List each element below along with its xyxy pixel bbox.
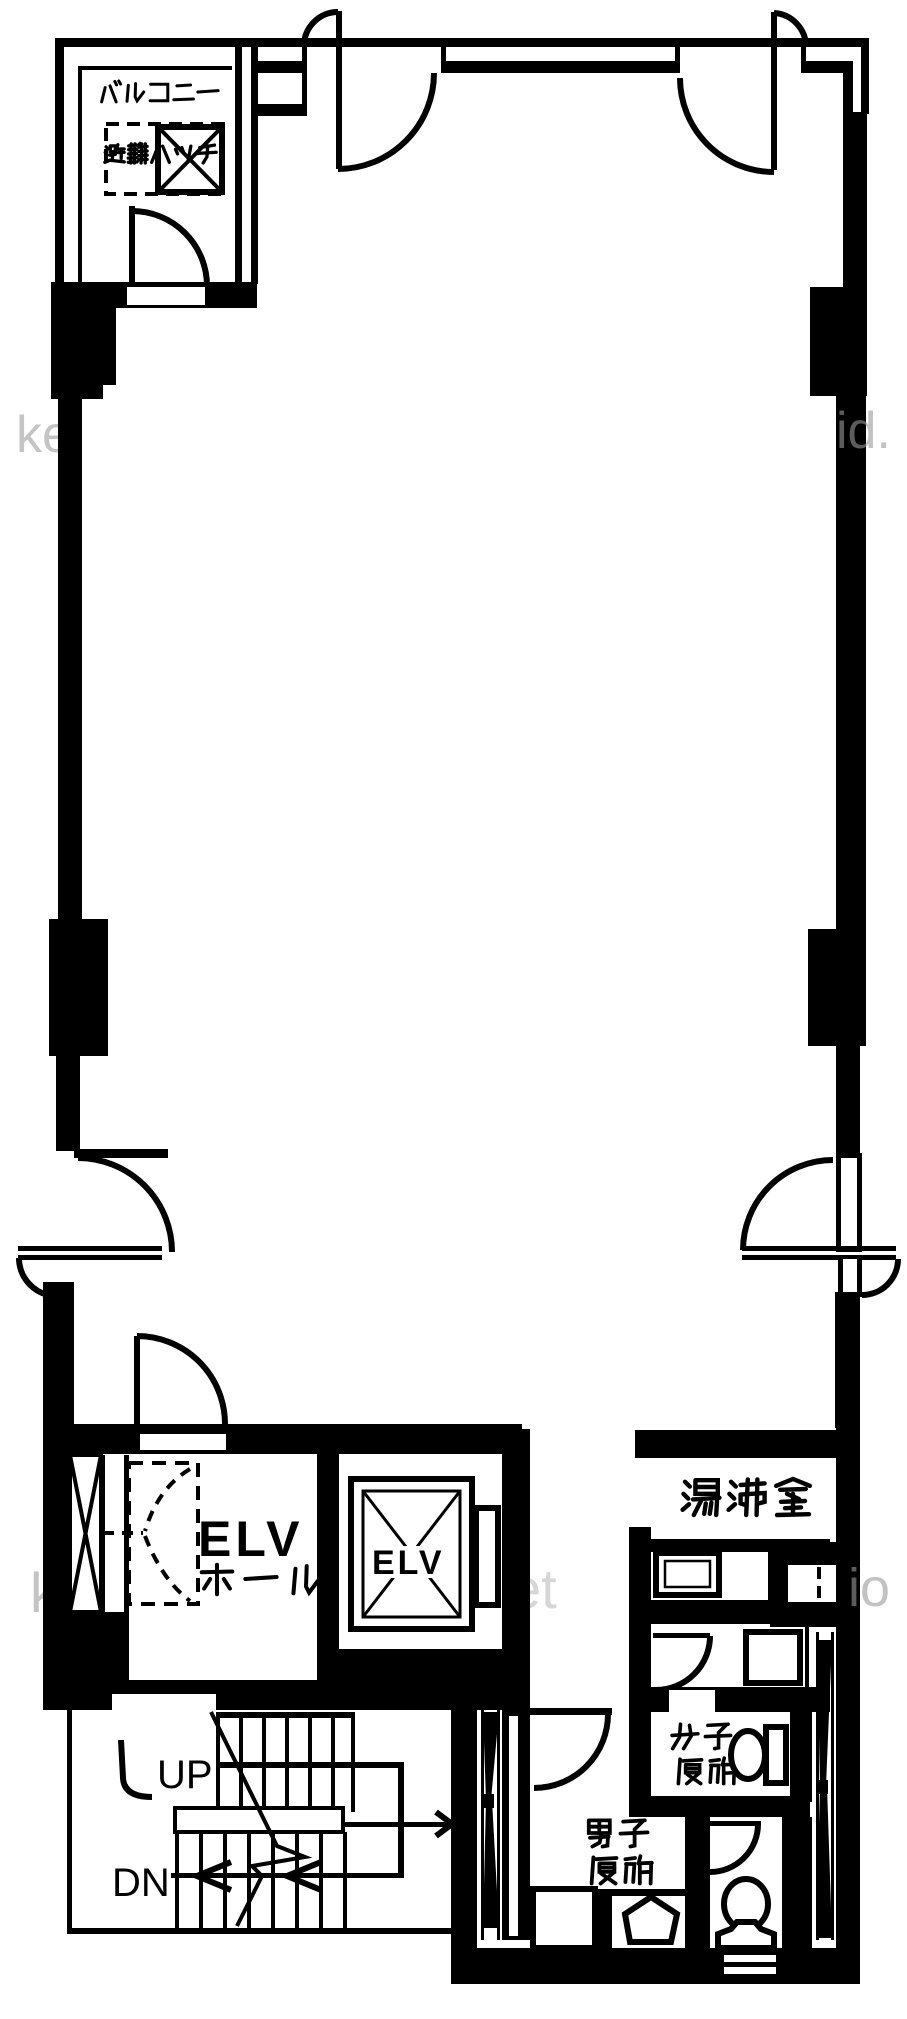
svg-text:ELV: ELV <box>198 1511 304 1567</box>
svg-text:UP: UP <box>157 1753 213 1797</box>
svg-text:ELV: ELV <box>372 1544 445 1582</box>
svg-text:DN: DN <box>112 1861 170 1905</box>
svg-text:id.: id. <box>836 402 891 460</box>
svg-text:io: io <box>848 1558 890 1618</box>
